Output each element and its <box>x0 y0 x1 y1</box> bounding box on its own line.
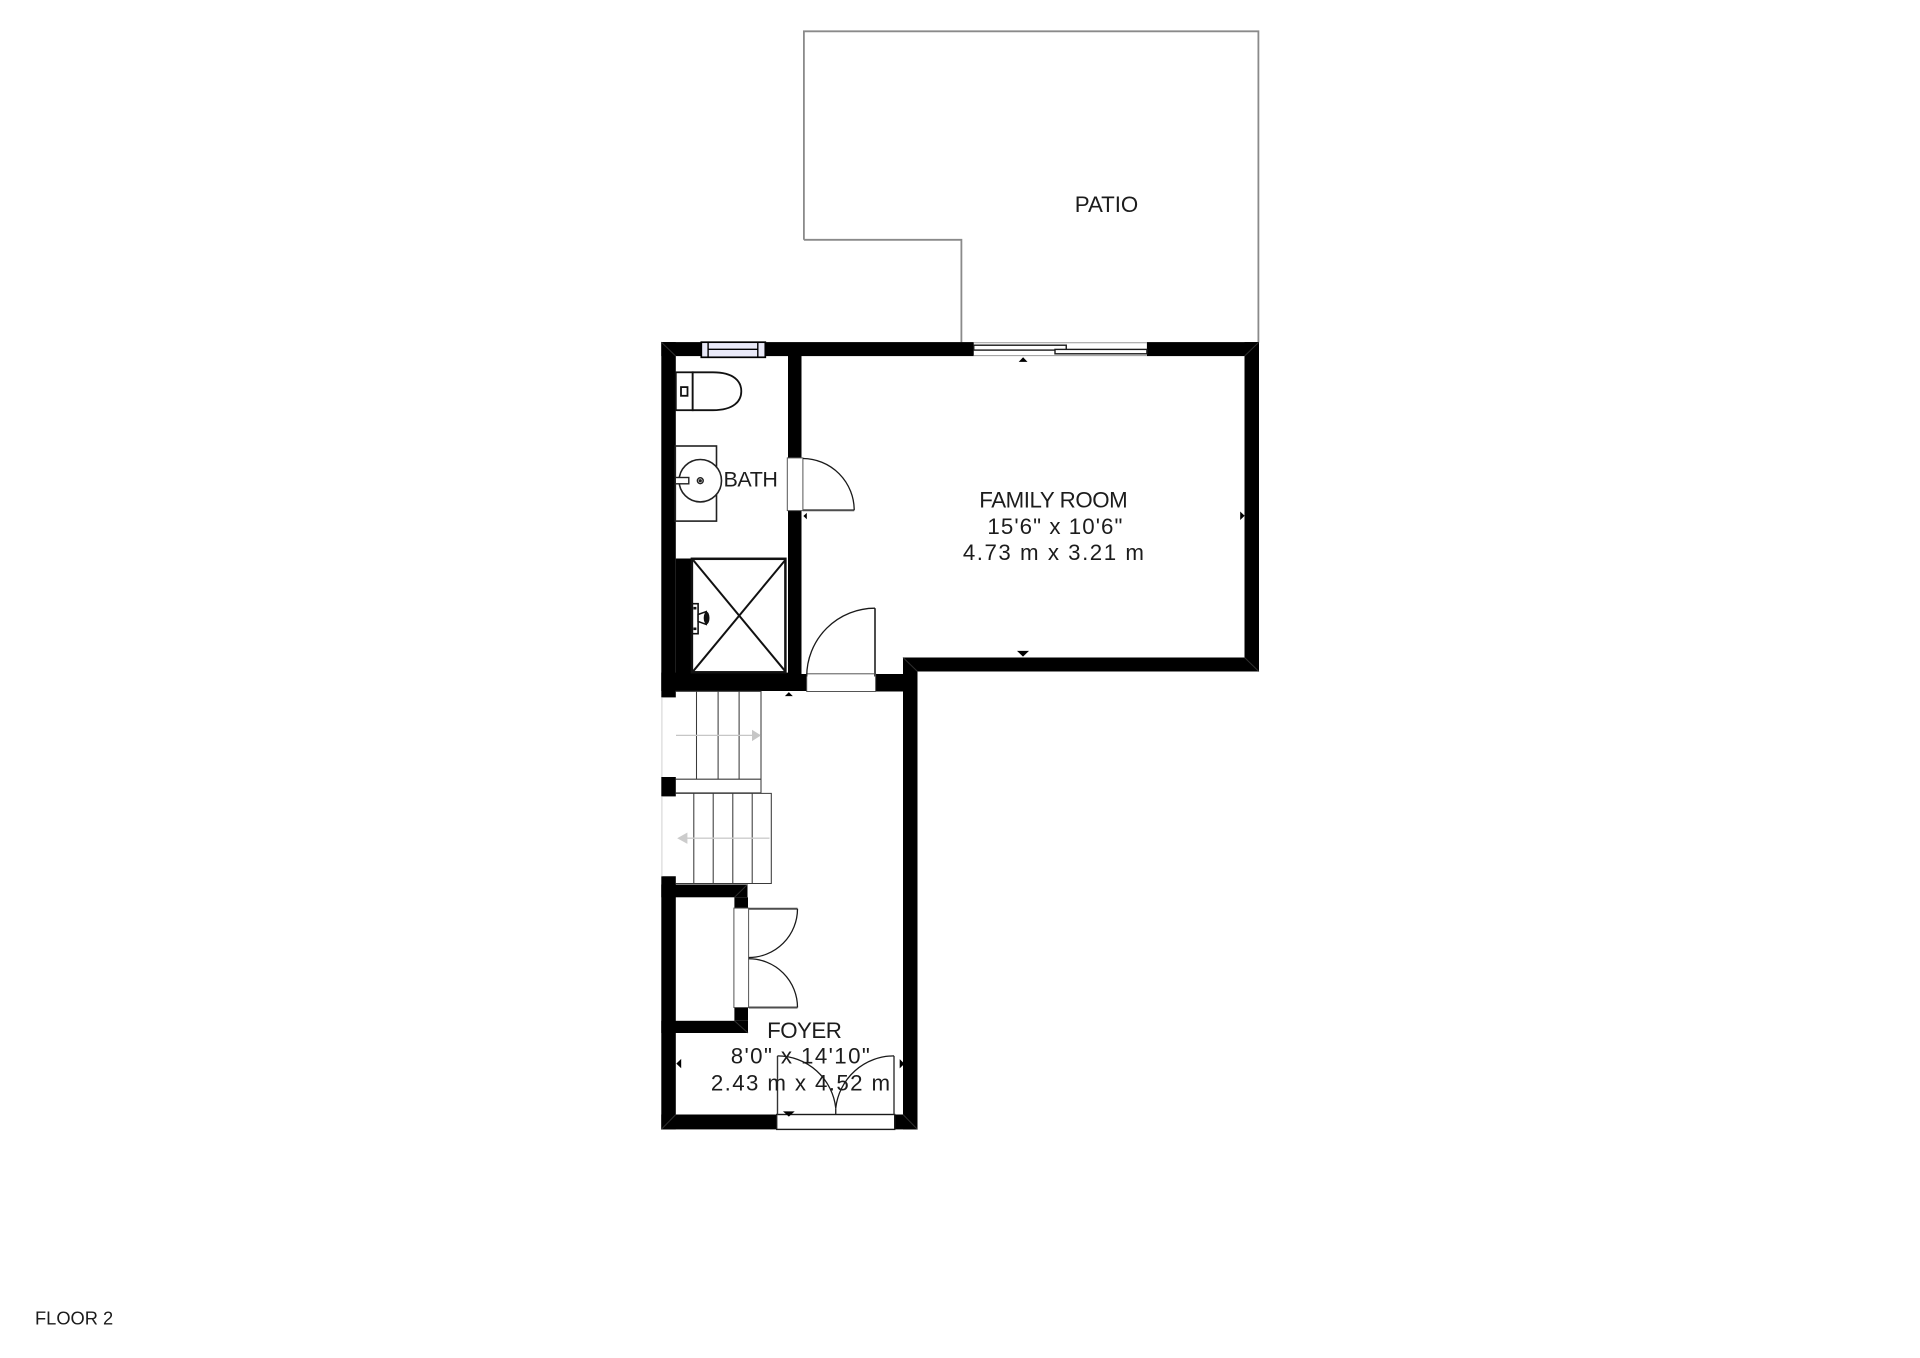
svg-text:8'0" x 14'10": 8'0" x 14'10" <box>731 1043 870 1068</box>
svg-text:FAMILY ROOM: FAMILY ROOM <box>979 488 1128 513</box>
svg-text:2.43 m x 4.52 m: 2.43 m x 4.52 m <box>711 1070 890 1095</box>
svg-text:4.73 m x 3.21 m: 4.73 m x 3.21 m <box>963 540 1144 565</box>
svg-text:FLOOR 2: FLOOR 2 <box>35 1308 113 1329</box>
svg-text:BATH: BATH <box>723 468 778 492</box>
svg-text:15'6" x 10'6": 15'6" x 10'6" <box>987 514 1122 539</box>
svg-text:PATIO: PATIO <box>1075 192 1139 217</box>
svg-text:FOYER: FOYER <box>767 1018 842 1043</box>
